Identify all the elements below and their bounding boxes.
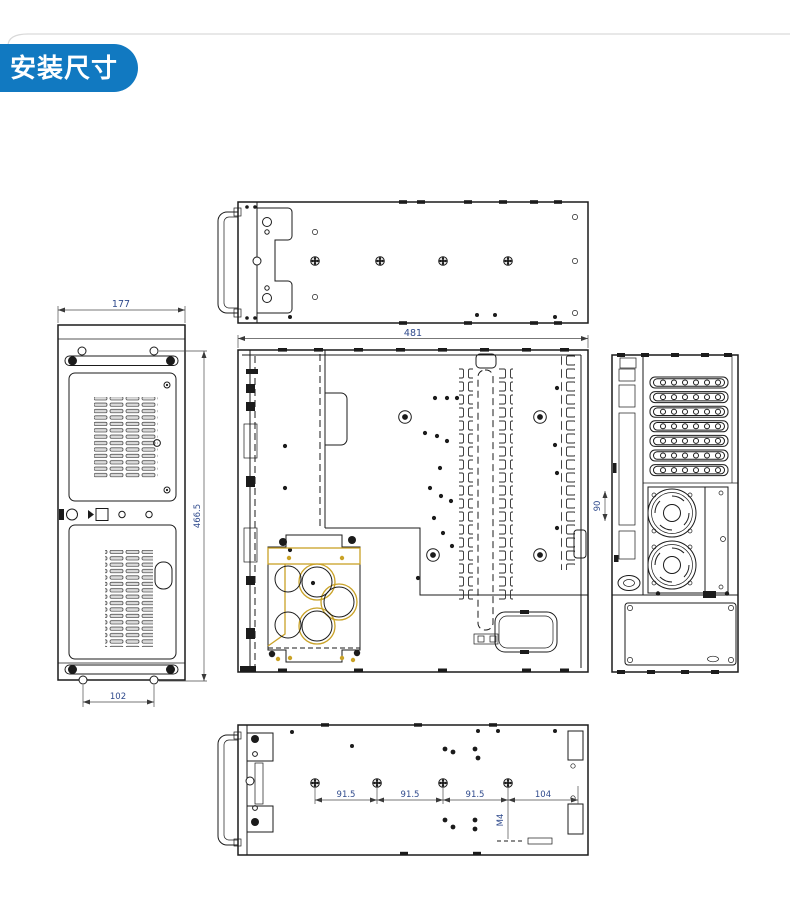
power-button (67, 509, 78, 520)
reset-switch (96, 509, 108, 521)
dim-front-width: 177 (112, 299, 130, 310)
fan-grille (648, 541, 696, 589)
drive-bracket-highlight (268, 535, 360, 662)
expansion-slot (650, 435, 728, 446)
dim-depth: 466.5 (193, 504, 203, 528)
dim-bottom-hole-callout: M4 (496, 814, 506, 827)
expansion-slot (650, 421, 728, 432)
rear-view-drawing: 90 (593, 343, 758, 688)
dim-rear-segment: 90 (593, 501, 603, 512)
top-view-mounting-screws (311, 257, 513, 266)
dim-bottom-spacing-1: 91.5 (337, 790, 356, 800)
expansion-slot (650, 465, 728, 476)
bottom-front-bracket (246, 725, 273, 855)
plan-view-body (238, 350, 588, 672)
expansion-slot (650, 392, 728, 403)
bottom-holes (290, 729, 557, 831)
bottom-rear-bracket (568, 731, 583, 834)
front-view-drawing: 177 (45, 293, 230, 718)
plan-edge-ticks (278, 348, 569, 672)
dim-bottom-spacing-4: 104 (535, 790, 551, 800)
expansion-slot (650, 377, 728, 388)
dim-top-width: 481 (404, 328, 422, 339)
expansion-slot (650, 450, 728, 461)
front-lower-cutout (155, 562, 172, 589)
plan-card-guide-slot (474, 354, 498, 644)
section-badge-label: 安装尺寸 (10, 53, 118, 83)
arrow-icon (88, 510, 94, 519)
dim-bottom-spacing-2: 91.5 (401, 790, 420, 800)
rear-expansion-slots (643, 377, 738, 483)
top-view-body (238, 202, 588, 323)
top-view-drawing (210, 195, 600, 330)
led-indicator (146, 511, 152, 517)
bottom-view-drawing: 91.5 91.5 91.5 104 M4 (210, 708, 600, 878)
plan-front-rail (240, 350, 258, 672)
expansion-slot (650, 406, 728, 417)
page: 安装尺寸 (0, 0, 790, 900)
top-view-holes (245, 205, 577, 320)
front-top-handle (65, 347, 178, 366)
fan-grille (648, 489, 696, 537)
dim-front-hole-spacing: 102 (110, 692, 126, 702)
front-lower-vent-louvers (105, 550, 153, 647)
plan-rear-cutout (495, 610, 557, 654)
dim-bottom-spacing-3: 91.5 (466, 790, 485, 800)
plan-view-drawing: 481 (228, 328, 603, 683)
rear-io-vent-column (613, 358, 640, 591)
rear-psu-area (612, 591, 738, 665)
front-upper-vent-louvers (94, 397, 158, 478)
bottom-mounting-screws (311, 779, 513, 788)
rear-fan-grilles (648, 487, 728, 593)
led-indicator (119, 511, 125, 517)
plan-holes (283, 386, 559, 585)
section-badge: 安装尺寸 (0, 44, 138, 92)
top-view-front-bracket (253, 202, 292, 323)
bottom-edge-ticks (321, 723, 552, 855)
front-control-row (59, 509, 152, 521)
top-view-edge-ticks (399, 200, 562, 325)
